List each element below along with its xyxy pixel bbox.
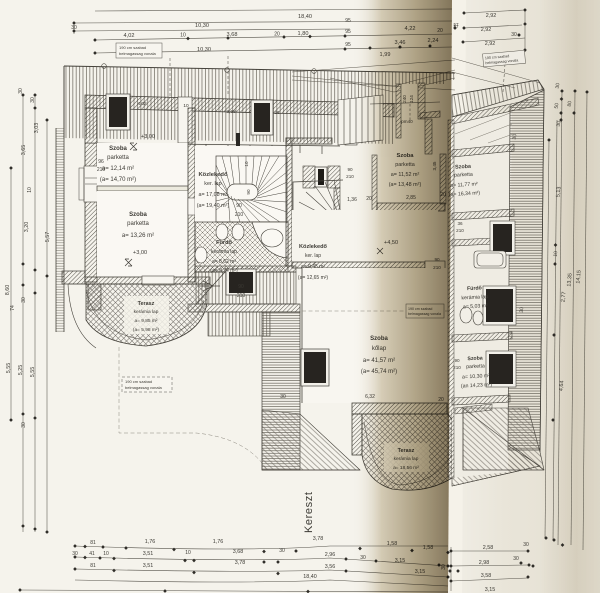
svg-text:10: 10 [27, 187, 33, 193]
svg-text:2,92: 2,92 [485, 41, 496, 47]
svg-text:3,20: 3,20 [24, 222, 30, 233]
svg-text:ker. lap: ker. lap [204, 181, 221, 187]
svg-text:210: 210 [235, 212, 244, 218]
svg-text:210: 210 [453, 365, 461, 370]
svg-text:+3,00: +3,00 [141, 134, 155, 140]
svg-text:1,80: 1,80 [298, 31, 309, 37]
svg-text:4,02: 4,02 [124, 33, 135, 39]
svg-text:a= 12,14 m²: a= 12,14 m² [102, 166, 134, 172]
svg-text:belmagassag vonala: belmagassag vonala [119, 51, 156, 56]
svg-text:210: 210 [97, 167, 106, 173]
svg-text:(a= 5,98 m²): (a= 5,98 m²) [133, 327, 160, 333]
svg-text:parketta: parketta [127, 221, 149, 227]
svg-text:74: 74 [10, 305, 16, 311]
svg-text:2,92: 2,92 [481, 27, 492, 33]
svg-text:90: 90 [454, 358, 460, 363]
svg-text:10,30: 10,30 [197, 47, 211, 53]
svg-text:30: 30 [279, 548, 285, 554]
svg-text:30: 30 [523, 542, 529, 548]
svg-text:ker. lap: ker. lap [305, 253, 321, 259]
svg-text:a= 9,85 m²: a= 9,85 m² [134, 318, 157, 324]
svg-text:a= 17,08 m²: a= 17,08 m² [199, 192, 228, 198]
svg-text:a= 13,26 m²: a= 13,26 m² [122, 233, 154, 239]
svg-text:3,58: 3,58 [481, 573, 492, 579]
svg-text:Közlekedő: Közlekedő [199, 172, 228, 178]
svg-text:4,02: 4,02 [137, 101, 147, 107]
svg-text:Közlekedő: Közlekedő [299, 244, 328, 250]
svg-text:(a= 14,70 m²): (a= 14,70 m²) [100, 177, 136, 183]
svg-text:190 cm szabad: 190 cm szabad [125, 379, 152, 384]
svg-text:Szoba: Szoba [109, 146, 127, 152]
svg-text:96: 96 [98, 159, 104, 165]
svg-text:81: 81 [90, 540, 96, 546]
svg-text:5,55: 5,55 [30, 367, 36, 378]
svg-text:30: 30 [30, 97, 36, 103]
svg-text:a= 8,62 m²: a= 8,62 m² [212, 259, 236, 265]
svg-text:2,58: 2,58 [483, 545, 494, 551]
svg-text:30: 30 [280, 394, 286, 400]
svg-text:1,76: 1,76 [145, 539, 156, 545]
svg-text:3,68: 3,68 [227, 32, 238, 38]
svg-text:3,78: 3,78 [313, 536, 324, 542]
svg-text:Fürdő: Fürdő [216, 240, 232, 246]
svg-text:3,51: 3,51 [143, 551, 154, 557]
svg-text:26: 26 [274, 110, 280, 116]
svg-text:41: 41 [89, 551, 95, 557]
svg-text:3,15: 3,15 [485, 587, 496, 593]
svg-text:belmagassag vonala: belmagassag vonala [125, 385, 162, 390]
svg-text:3,78: 3,78 [235, 560, 246, 566]
svg-text:5,57: 5,57 [45, 232, 51, 243]
svg-text:Szoba: Szoba [129, 212, 147, 218]
svg-text:parketta: parketta [466, 363, 485, 370]
svg-text:18,40: 18,40 [298, 14, 312, 20]
svg-text:18,40: 18,40 [303, 574, 317, 580]
svg-text:30: 30 [511, 32, 517, 38]
svg-text:57: 57 [453, 22, 459, 27]
svg-text:3,03: 3,03 [34, 123, 40, 134]
svg-text:parketta: parketta [107, 155, 129, 161]
svg-text:3,68: 3,68 [226, 109, 236, 115]
svg-text:Kereszt: Kereszt [303, 492, 315, 534]
svg-text:8,60: 8,60 [5, 285, 11, 296]
svg-text:10: 10 [180, 33, 186, 39]
svg-text:210: 210 [237, 293, 246, 299]
svg-text:1,76: 1,76 [213, 539, 224, 545]
svg-text:2,98: 2,98 [479, 560, 490, 566]
svg-text:5,25: 5,25 [18, 365, 24, 376]
svg-text:3,51: 3,51 [143, 563, 154, 569]
svg-text:5,55: 5,55 [6, 363, 12, 374]
svg-text:3,56: 3,56 [325, 564, 336, 570]
svg-text:(a= 12,65 m²): (a= 12,65 m²) [298, 275, 328, 281]
svg-text:Szoba: Szoba [467, 355, 483, 362]
svg-text:+3,00: +3,00 [133, 250, 147, 256]
svg-text:Szoba: Szoba [455, 164, 472, 171]
svg-text:2,92: 2,92 [486, 13, 497, 19]
svg-text:(a= 9,74 m²): (a= 9,74 m²) [210, 268, 238, 274]
svg-text:90: 90 [246, 189, 251, 195]
svg-text:10: 10 [183, 103, 189, 109]
svg-text:36: 36 [457, 221, 463, 226]
svg-text:90: 90 [238, 284, 244, 290]
svg-text:90: 90 [236, 203, 242, 209]
svg-text:30: 30 [513, 556, 519, 562]
svg-text:30: 30 [512, 134, 519, 140]
svg-text:20: 20 [274, 32, 280, 38]
svg-text:kerámia lap: kerámia lap [134, 309, 159, 315]
svg-text:3,65: 3,65 [21, 145, 27, 156]
svg-text:3,68: 3,68 [233, 549, 244, 555]
svg-text:2,96: 2,96 [325, 552, 336, 558]
svg-text:10: 10 [185, 550, 191, 556]
svg-text:30: 30 [21, 422, 27, 428]
svg-text:190 cm szabad: 190 cm szabad [119, 45, 146, 50]
svg-text:Fürdő: Fürdő [467, 285, 482, 292]
svg-text:30: 30 [18, 88, 24, 94]
svg-text:parketta: parketta [454, 172, 473, 179]
svg-text:210: 210 [456, 228, 464, 233]
svg-text:30: 30 [21, 297, 27, 303]
svg-text:a= 9,45 m²: a= 9,45 m² [301, 264, 325, 270]
svg-text:kerámia lap: kerámia lap [211, 249, 237, 255]
svg-text:30: 30 [519, 307, 525, 313]
svg-text:10: 10 [103, 551, 109, 557]
svg-text:81: 81 [90, 563, 96, 569]
svg-text:10: 10 [244, 161, 249, 167]
svg-text:10,30: 10,30 [195, 23, 209, 29]
svg-text:Terasz: Terasz [138, 301, 155, 307]
svg-text:(a= 19,40 m²): (a= 19,40 m²) [197, 203, 230, 209]
svg-text:30: 30 [71, 25, 77, 31]
